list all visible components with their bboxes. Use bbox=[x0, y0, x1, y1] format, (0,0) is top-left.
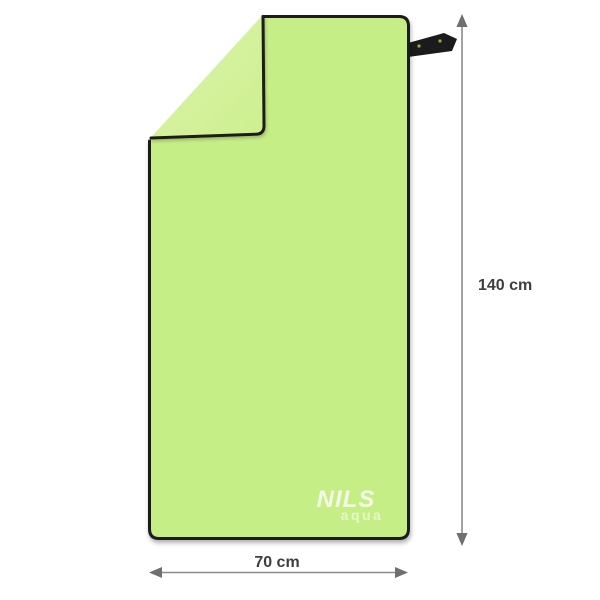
strap-logo-speck bbox=[417, 44, 420, 47]
towel-body bbox=[148, 15, 410, 540]
product-dimension-figure: NILS aqua 140 cm 70 cm bbox=[0, 0, 600, 600]
height-dimension-arrow-icon bbox=[456, 14, 467, 546]
width-dimension-label: 70 cm bbox=[254, 554, 299, 571]
towel-dimension-graphic: NILS aqua 140 cm 70 cm bbox=[0, 0, 600, 600]
brand-logo-aqua: aqua bbox=[341, 507, 384, 523]
height-dimension-label: 140 cm bbox=[478, 277, 532, 294]
strap-logo-speck bbox=[438, 39, 441, 42]
hang-loop-icon bbox=[408, 33, 457, 57]
towel-folded-corner bbox=[150, 15, 266, 140]
